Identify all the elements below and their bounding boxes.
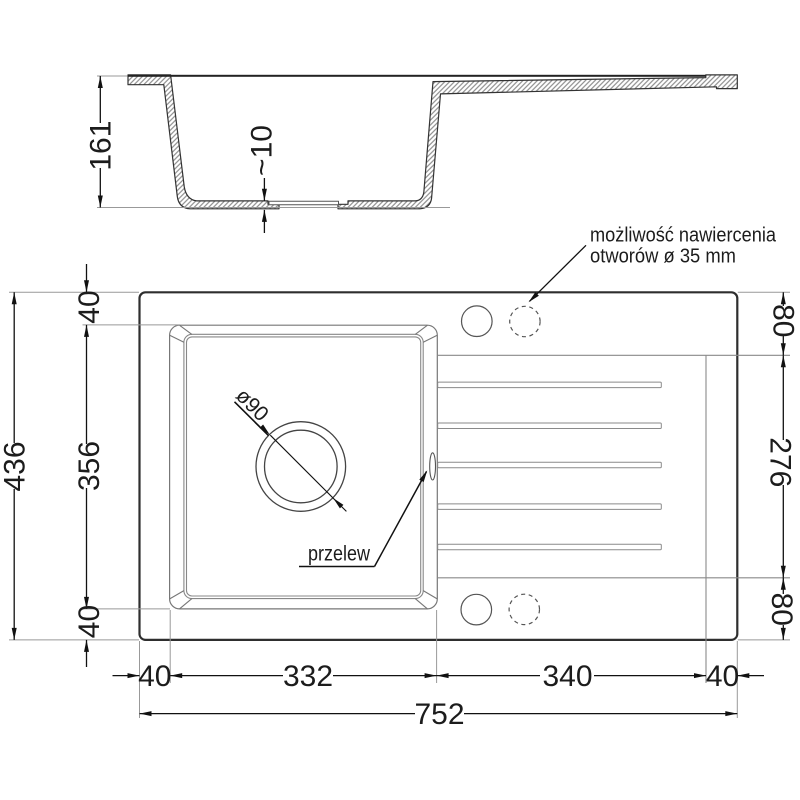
- svg-text:40: 40: [73, 605, 106, 638]
- svg-text:436: 436: [0, 441, 32, 491]
- svg-text:40: 40: [706, 660, 739, 693]
- svg-text:przelew: przelew: [308, 543, 371, 566]
- svg-text:możliwość nawiercenia: możliwość nawiercenia: [590, 225, 777, 247]
- svg-text:356: 356: [73, 441, 106, 491]
- svg-text:332: 332: [283, 660, 333, 693]
- svg-text:80: 80: [765, 593, 798, 626]
- svg-text:40: 40: [138, 660, 171, 693]
- svg-text:otworów ø 35 mm: otworów ø 35 mm: [590, 246, 736, 268]
- svg-text:340: 340: [542, 660, 592, 693]
- svg-text:80: 80: [767, 304, 800, 337]
- svg-text:40: 40: [73, 290, 106, 323]
- svg-text:ø90: ø90: [231, 384, 273, 426]
- svg-text:276: 276: [764, 437, 797, 487]
- svg-text:~10: ~10: [246, 125, 279, 176]
- svg-text:752: 752: [414, 698, 464, 731]
- svg-text:161: 161: [84, 121, 117, 171]
